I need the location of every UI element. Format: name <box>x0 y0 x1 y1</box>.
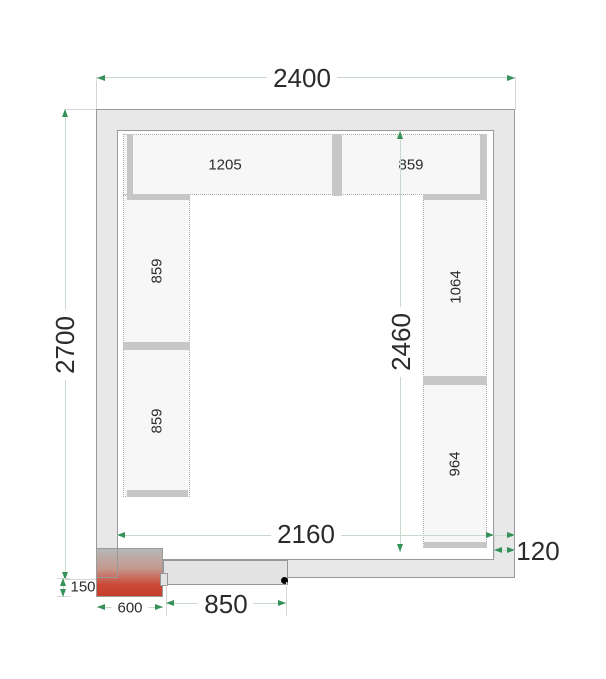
dim-arrow-down <box>60 589 66 597</box>
shelf-support-bar <box>480 134 487 197</box>
dim-unit-width-label: 600 <box>111 600 148 617</box>
dim-arrow-right <box>278 600 286 606</box>
dim-arrow-left <box>117 532 125 538</box>
floor-plan-drawing: 1205 859 859 859 1064 964 2400 2700 2460… <box>0 0 606 679</box>
shelf-top-right-label: 859 <box>398 158 423 173</box>
dim-arrow-right <box>507 547 515 553</box>
shelf-support-bar <box>423 376 487 385</box>
extension-line <box>96 77 97 109</box>
dim-arrow-left <box>97 604 105 610</box>
shelf-left-upper-label: 859 <box>150 258 165 283</box>
dim-door-width-label: 850 <box>198 590 253 618</box>
shelf-support-bar <box>127 134 133 197</box>
dim-outer-height-label: 2700 <box>51 310 79 380</box>
shelf-left-lower-label: 859 <box>150 408 165 433</box>
dim-arrow-right <box>507 75 515 81</box>
dim-arrow-right <box>507 532 515 538</box>
shelf-support-bar <box>127 194 190 200</box>
extension-line <box>65 109 96 110</box>
shelf-support-bar <box>123 342 190 350</box>
dim-inner-width-label: 2160 <box>271 520 341 548</box>
door-leaf <box>163 560 288 585</box>
dim-outer-width-label: 2400 <box>267 64 337 92</box>
dim-arrow-up <box>62 109 68 117</box>
dim-wall-thickness-label: 120 <box>516 538 559 564</box>
extension-line <box>286 582 287 616</box>
dim-arrow-right <box>155 604 163 610</box>
condensing-unit <box>96 548 163 597</box>
dim-arrow-up <box>60 578 66 586</box>
shelf-support-bar <box>332 134 342 196</box>
dim-arrow-down <box>397 544 403 552</box>
shelf-support-bar <box>423 194 487 200</box>
wall-outline-overlay <box>96 577 118 578</box>
dim-arrow-right <box>486 532 494 538</box>
dim-arrow-left <box>97 75 105 81</box>
dim-arrow-left <box>166 600 174 606</box>
shelf-support-bar <box>424 542 487 548</box>
dim-arrow-up <box>397 131 403 139</box>
shelf-right-upper-label: 1064 <box>449 270 464 303</box>
shelf-right-lower-label: 964 <box>448 451 463 476</box>
shelf-support-bar <box>127 490 188 497</box>
dim-arrow-left <box>494 547 502 553</box>
dim-unit-offset-label: 150 <box>70 580 95 595</box>
dim-inner-height-label: 2460 <box>387 307 415 377</box>
wall-outline-overlay <box>117 548 118 578</box>
extension-line <box>515 77 516 110</box>
shelf-top-left-label: 1205 <box>208 158 241 173</box>
